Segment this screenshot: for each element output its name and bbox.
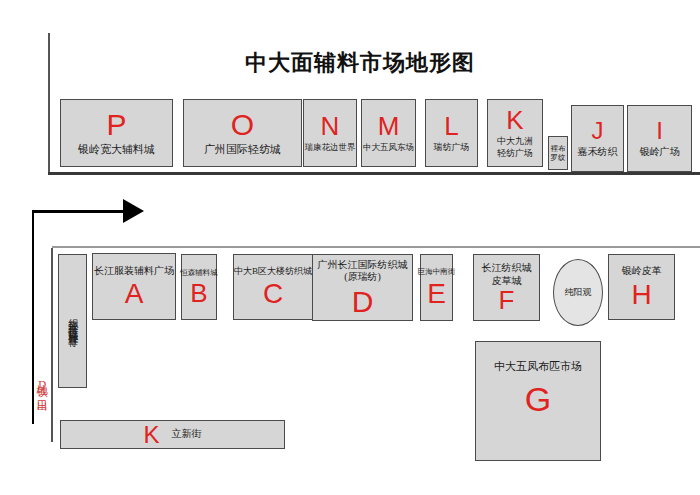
- market-letter-n: N: [321, 113, 340, 139]
- market-label-n: 瑞康花边世界: [305, 142, 356, 153]
- market-label-l: 瑞纺广场: [434, 142, 470, 153]
- street-letter-k: K: [143, 423, 159, 447]
- market-letter-j: J: [592, 119, 604, 143]
- market-letter-p: P: [106, 110, 126, 140]
- market-label-k-line1: 中大九洲: [497, 136, 533, 147]
- market-map: 中大面辅料市场地形图 地铁D出口 P 银岭宽大辅料城 O 广州国际轻纺城 N 瑞…: [0, 0, 700, 495]
- market-box-b: 恒森辅料城 B: [181, 254, 217, 320]
- market-box-j: J 嘉禾纺织: [571, 105, 624, 172]
- market-letter-c: C: [263, 280, 283, 308]
- market-letter-d: D: [352, 287, 374, 317]
- market-letter-e: E: [427, 280, 446, 308]
- market-letter-m: M: [378, 113, 400, 139]
- direction-arrow-shaft: [32, 210, 124, 213]
- market-label-m: 中大五凤东场: [363, 142, 414, 153]
- market-box-i: I 银岭广场: [627, 105, 692, 172]
- market-label-g: 中大五凤布匹市场: [494, 360, 582, 374]
- road-line-horizontal-upper: [48, 172, 700, 175]
- market-label-k-line2: 轻纺广场: [497, 148, 533, 159]
- direction-arrow-tail: [32, 210, 34, 424]
- map-title: 中大面辅料市场地形图: [110, 48, 610, 78]
- market-label-f-line1: 长江纺织城: [482, 262, 532, 275]
- market-box-f: 长江纺织城 皮草城 F: [473, 254, 540, 321]
- market-box-p: P 银岭宽大辅料城: [60, 99, 173, 167]
- road-line-vertical-left: [51, 248, 53, 442]
- market-letter-l: L: [444, 113, 458, 139]
- market-letter-h: H: [631, 281, 651, 309]
- market-label-e: 巨海中南街: [418, 267, 456, 276]
- accessories-strip-label: 织带丝带拉链绳标牌章仔: [66, 310, 79, 332]
- market-box-n: N 瑞康花边世界: [303, 99, 357, 167]
- market-letter-i: I: [656, 119, 663, 143]
- road-line-top-left: [48, 33, 50, 173]
- market-box-k: K 中大九洲 轻纺广场: [487, 99, 543, 167]
- direction-arrow-icon: [123, 199, 144, 223]
- street-box-k: K 立新街: [60, 420, 285, 449]
- market-label-h: 银岭皮革: [622, 265, 662, 278]
- road-line-horizontal-lower: [52, 246, 700, 248]
- street-label-k: 立新街: [172, 428, 202, 441]
- market-box-e: 巨海中南街 E: [420, 254, 453, 321]
- market-box-g: 中大五凤布匹市场 G: [475, 341, 601, 461]
- market-letter-o: O: [231, 110, 254, 140]
- market-letter-g: G: [525, 382, 551, 416]
- market-label-p: 银岭宽大辅料城: [78, 143, 155, 157]
- market-label-j: 嘉禾纺织: [578, 146, 618, 159]
- market-label-d-line1: 广州长江国际纺织城: [318, 259, 408, 272]
- market-label-i: 银岭广场: [640, 146, 680, 159]
- market-box-d: 广州长江国际纺织城 (原瑞纺) D: [312, 254, 413, 321]
- lining-label-line1: 裡布: [551, 144, 566, 153]
- lining-ribbed-box: 裡布 罗纹: [548, 136, 568, 170]
- market-letter-f: F: [499, 287, 515, 313]
- temple-label: 纯阳观: [565, 287, 592, 298]
- market-box-o: O 广州国际轻纺城: [183, 99, 302, 167]
- market-box-l: L 瑞纺广场: [425, 99, 478, 167]
- market-box-a: 长江服装辅料广场 A: [92, 253, 176, 320]
- market-box-m: M 中大五凤东场: [361, 99, 416, 167]
- market-box-c: 中大B区大楼纺织城 C: [233, 254, 313, 320]
- accessories-strip-box: 织带丝带拉链绳标牌章仔: [58, 254, 87, 388]
- market-letter-a: A: [125, 280, 144, 308]
- market-letter-b: B: [190, 280, 207, 306]
- market-label-o: 广州国际轻纺城: [204, 143, 281, 157]
- market-label-a: 长江服装辅料广场: [94, 265, 174, 278]
- temple-ellipse: 纯阳观: [553, 259, 603, 326]
- metro-exit-label: 地铁D出口: [35, 376, 48, 393]
- market-letter-k: K: [506, 107, 523, 133]
- market-label-d-line2: (原瑞纺): [344, 271, 381, 284]
- lining-label-line2: 罗纹: [551, 153, 566, 162]
- market-box-h: 银岭皮革 H: [608, 254, 675, 320]
- market-label-b: 恒森辅料城: [180, 268, 218, 277]
- market-label-c: 中大B区大楼纺织城: [234, 266, 312, 277]
